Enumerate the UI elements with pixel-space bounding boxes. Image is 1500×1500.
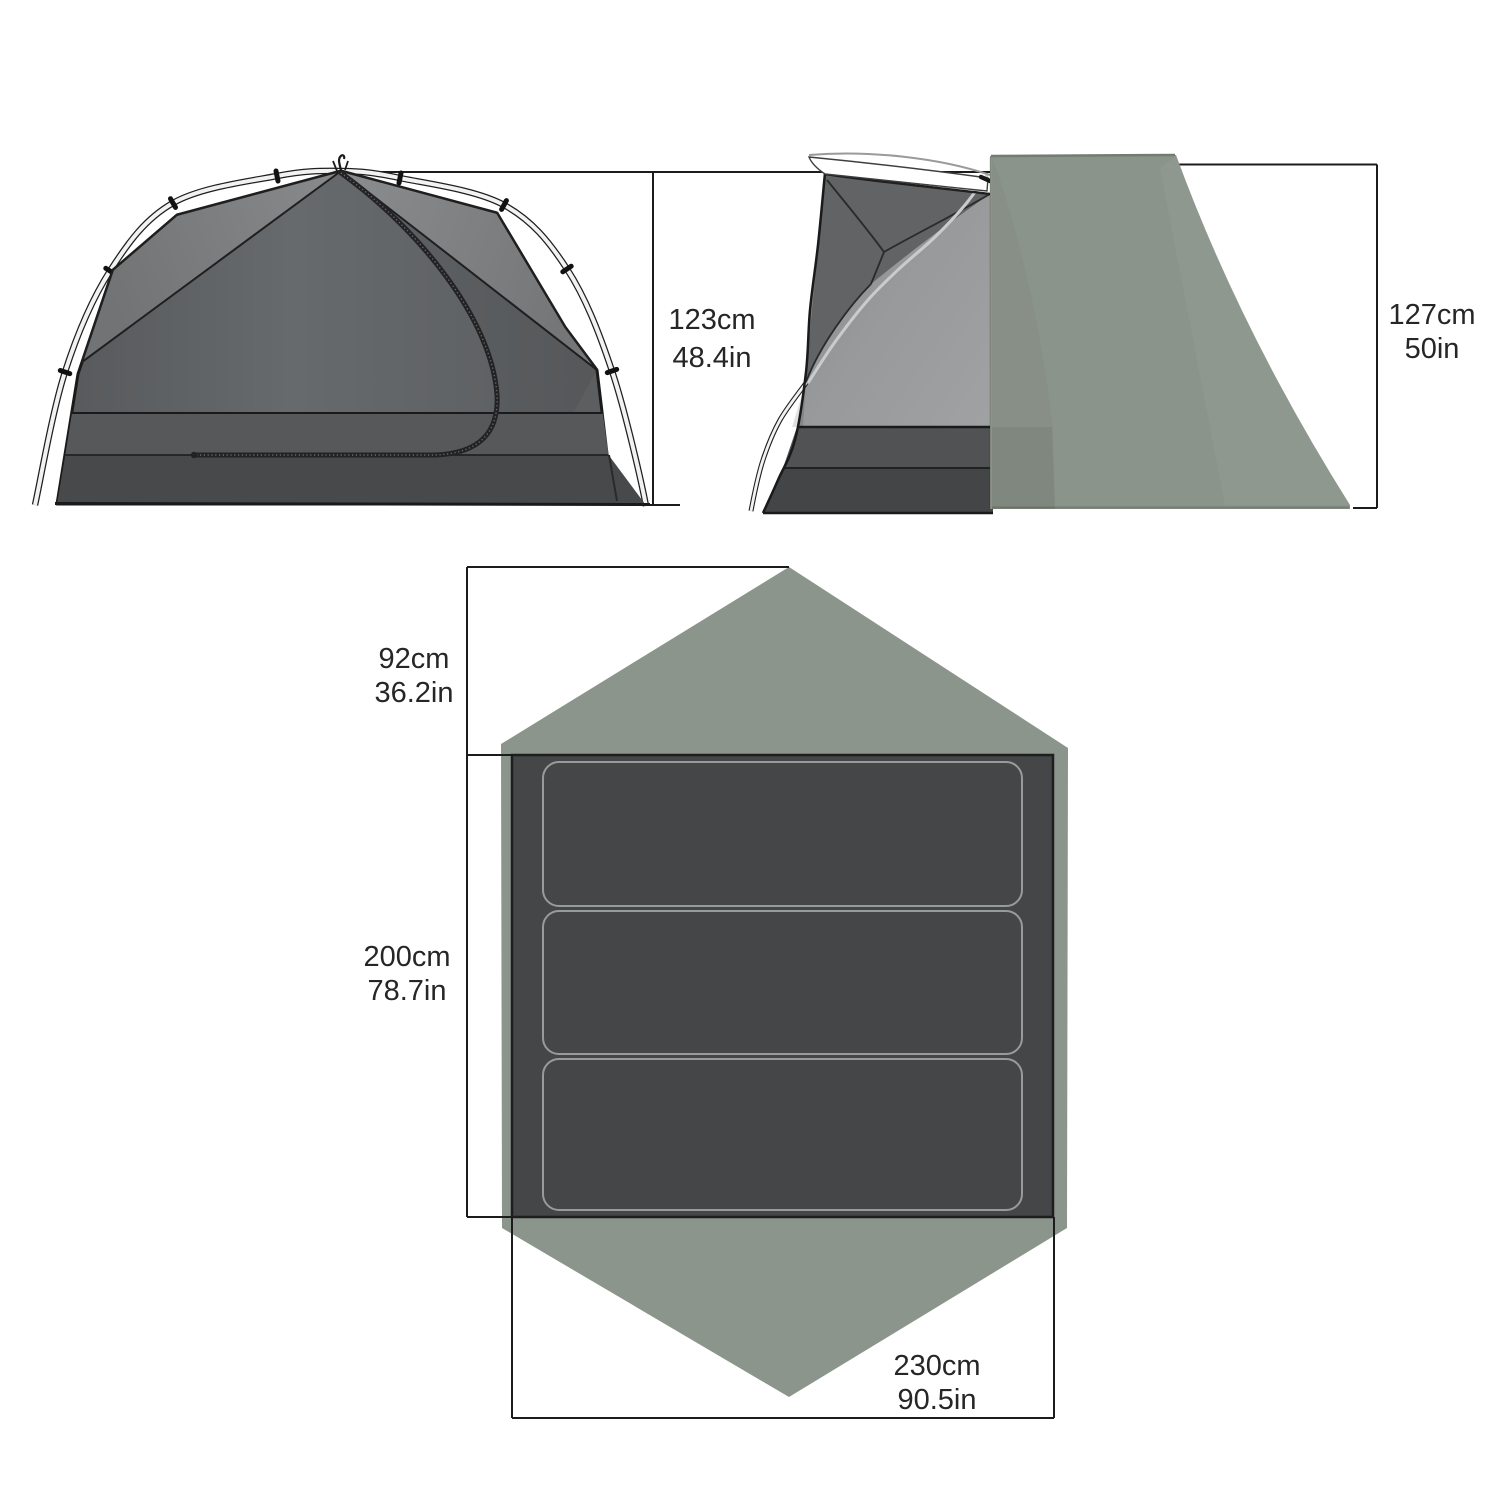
svg-text:127cm: 127cm: [1388, 299, 1475, 331]
svg-text:48.4in: 48.4in: [672, 342, 751, 374]
svg-text:90.5in: 90.5in: [897, 1384, 976, 1416]
svg-text:200cm: 200cm: [363, 941, 450, 973]
svg-text:92cm: 92cm: [379, 643, 450, 675]
svg-text:50in: 50in: [1405, 333, 1460, 365]
svg-text:123cm: 123cm: [668, 304, 755, 336]
svg-text:230cm: 230cm: [893, 1350, 980, 1382]
svg-text:36.2in: 36.2in: [374, 677, 453, 709]
svg-text:78.7in: 78.7in: [367, 975, 446, 1007]
